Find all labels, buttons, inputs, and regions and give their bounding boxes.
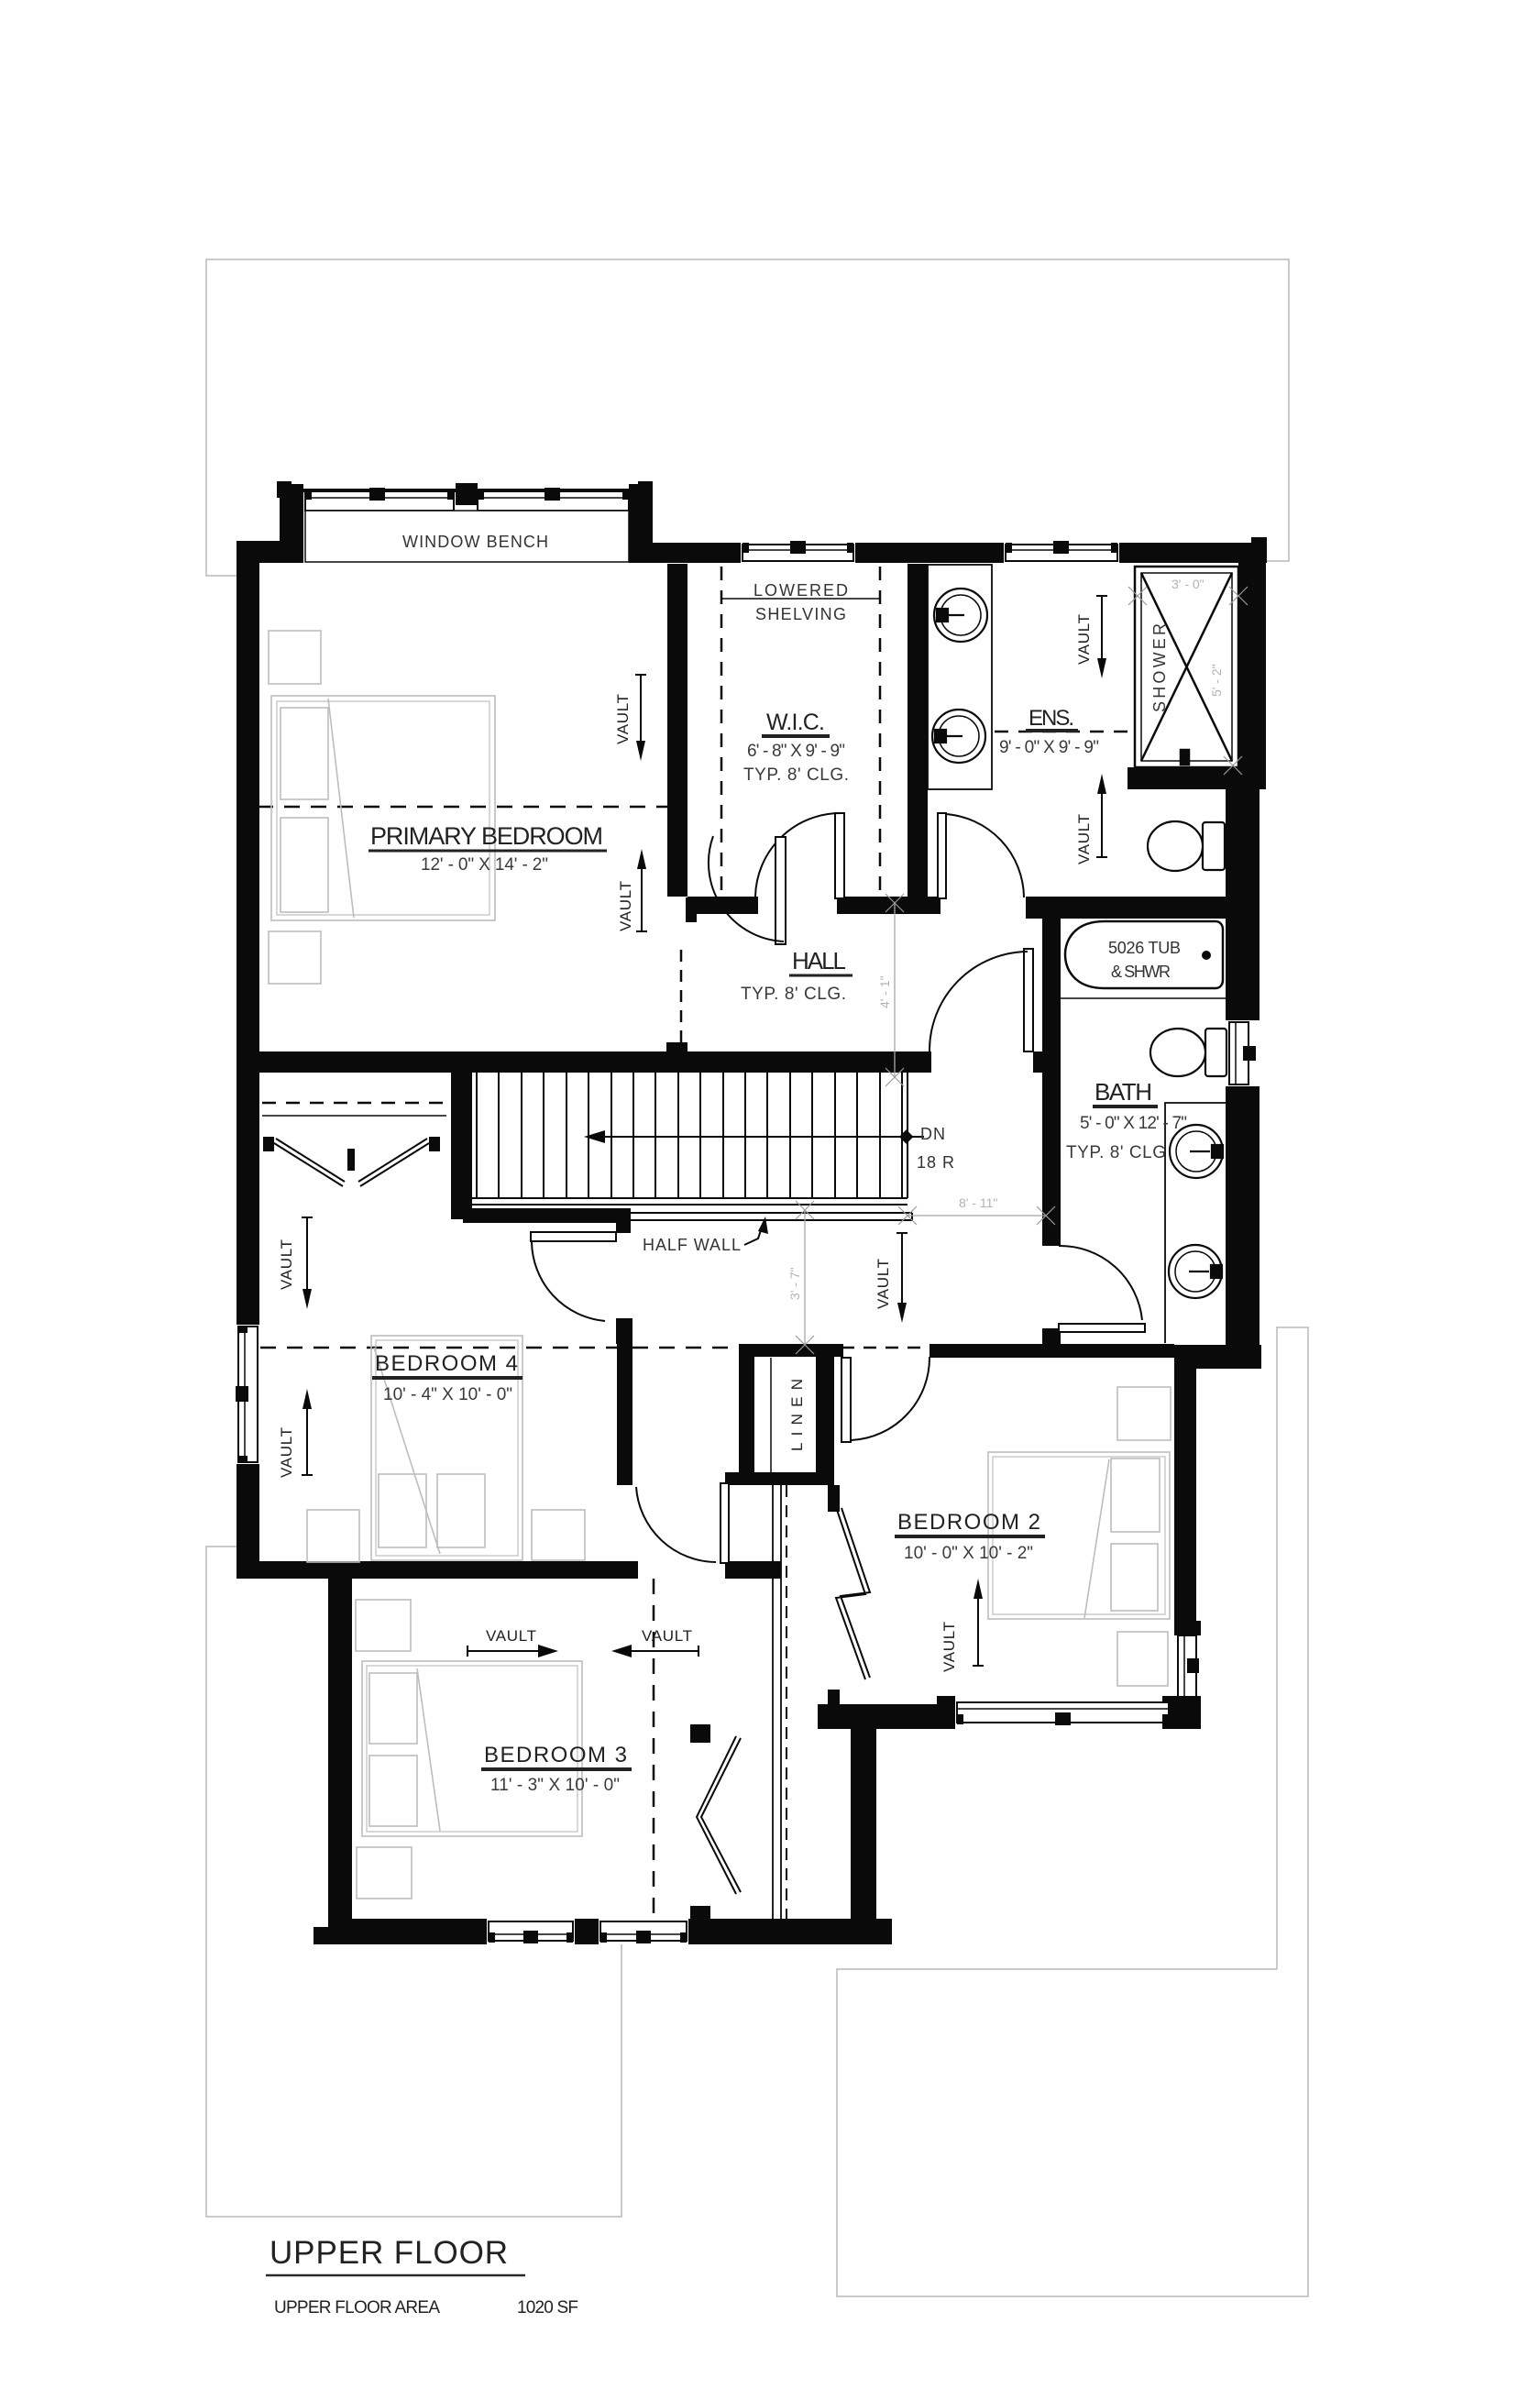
svg-text:TYP. 8' CLG: TYP. 8' CLG bbox=[1066, 1143, 1167, 1162]
svg-text:11' - 3" X 10' - 0": 11' - 3" X 10' - 0" bbox=[490, 1776, 621, 1795]
svg-text:VAULT: VAULT bbox=[486, 1627, 537, 1645]
svg-text:10' - 0" X 10' - 2": 10' - 0" X 10' - 2" bbox=[904, 1544, 1034, 1563]
svg-text:VAULT: VAULT bbox=[617, 880, 634, 931]
svg-text:& SHWR: & SHWR bbox=[1111, 963, 1171, 981]
svg-text:UPPER FLOOR AREA: UPPER FLOOR AREA bbox=[274, 2298, 441, 2317]
svg-text:6' - 8" X 9' - 9": 6' - 8" X 9' - 9" bbox=[747, 742, 846, 761]
svg-text:BEDROOM 4: BEDROOM 4 bbox=[375, 1351, 520, 1376]
svg-text:8' - 11": 8' - 11" bbox=[959, 1195, 997, 1210]
svg-text:WINDOW BENCH: WINDOW BENCH bbox=[402, 533, 549, 551]
svg-text:TYP. 8' CLG.: TYP. 8' CLG. bbox=[743, 765, 850, 785]
svg-text:HALF WALL: HALF WALL bbox=[643, 1236, 742, 1254]
svg-text:HALL: HALL bbox=[792, 947, 849, 974]
svg-text:VAULT: VAULT bbox=[1075, 613, 1093, 665]
svg-text:12' - 0" X 14' - 2": 12' - 0" X 14' - 2" bbox=[421, 855, 549, 875]
svg-text:BEDROOM 3: BEDROOM 3 bbox=[484, 1743, 629, 1767]
svg-text:SHOWER: SHOWER bbox=[1150, 622, 1169, 712]
svg-text:9' - 0" X 9' - 9": 9' - 0" X 9' - 9" bbox=[999, 738, 1100, 757]
svg-text:BEDROOM 2: BEDROOM 2 bbox=[897, 1510, 1042, 1535]
svg-text:VAULT: VAULT bbox=[278, 1239, 295, 1290]
svg-text:PRIMARY BEDROOM: PRIMARY BEDROOM bbox=[370, 822, 605, 850]
svg-text:VAULT: VAULT bbox=[642, 1627, 693, 1645]
svg-text:UPPER FLOOR: UPPER FLOOR bbox=[269, 2235, 510, 2271]
svg-text:5026 TUB: 5026 TUB bbox=[1108, 939, 1182, 957]
svg-text:VAULT: VAULT bbox=[278, 1426, 295, 1478]
svg-text:1020 SF: 1020 SF bbox=[517, 2298, 579, 2317]
svg-text:4' - 1": 4' - 1" bbox=[877, 975, 892, 1008]
svg-text:10' - 4" X 10' - 0": 10' - 4" X 10' - 0" bbox=[383, 1385, 513, 1404]
svg-text:DN: DN bbox=[920, 1125, 946, 1143]
svg-text:3' - 0": 3' - 0" bbox=[1171, 577, 1204, 591]
svg-text:18 R: 18 R bbox=[917, 1153, 955, 1172]
svg-text:ENS.: ENS. bbox=[1028, 706, 1076, 731]
svg-text:3' - 7": 3' - 7" bbox=[787, 1267, 802, 1300]
svg-text:VAULT: VAULT bbox=[874, 1258, 892, 1309]
svg-text:VAULT: VAULT bbox=[940, 1621, 958, 1672]
svg-text:LOWERED: LOWERED bbox=[753, 581, 849, 600]
svg-text:SHELVING: SHELVING bbox=[755, 605, 847, 623]
svg-text:BATH: BATH bbox=[1094, 1078, 1155, 1106]
svg-text:VAULT: VAULT bbox=[1075, 813, 1093, 864]
svg-text:5' - 2": 5' - 2" bbox=[1209, 664, 1224, 697]
svg-text:W.I.C.: W.I.C. bbox=[766, 710, 827, 735]
svg-text:5' - 0" X 12' - 7": 5' - 0" X 12' - 7" bbox=[1080, 1114, 1188, 1133]
svg-text:VAULT: VAULT bbox=[614, 693, 632, 744]
svg-text:TYP. 8' CLG.: TYP. 8' CLG. bbox=[741, 985, 847, 1004]
